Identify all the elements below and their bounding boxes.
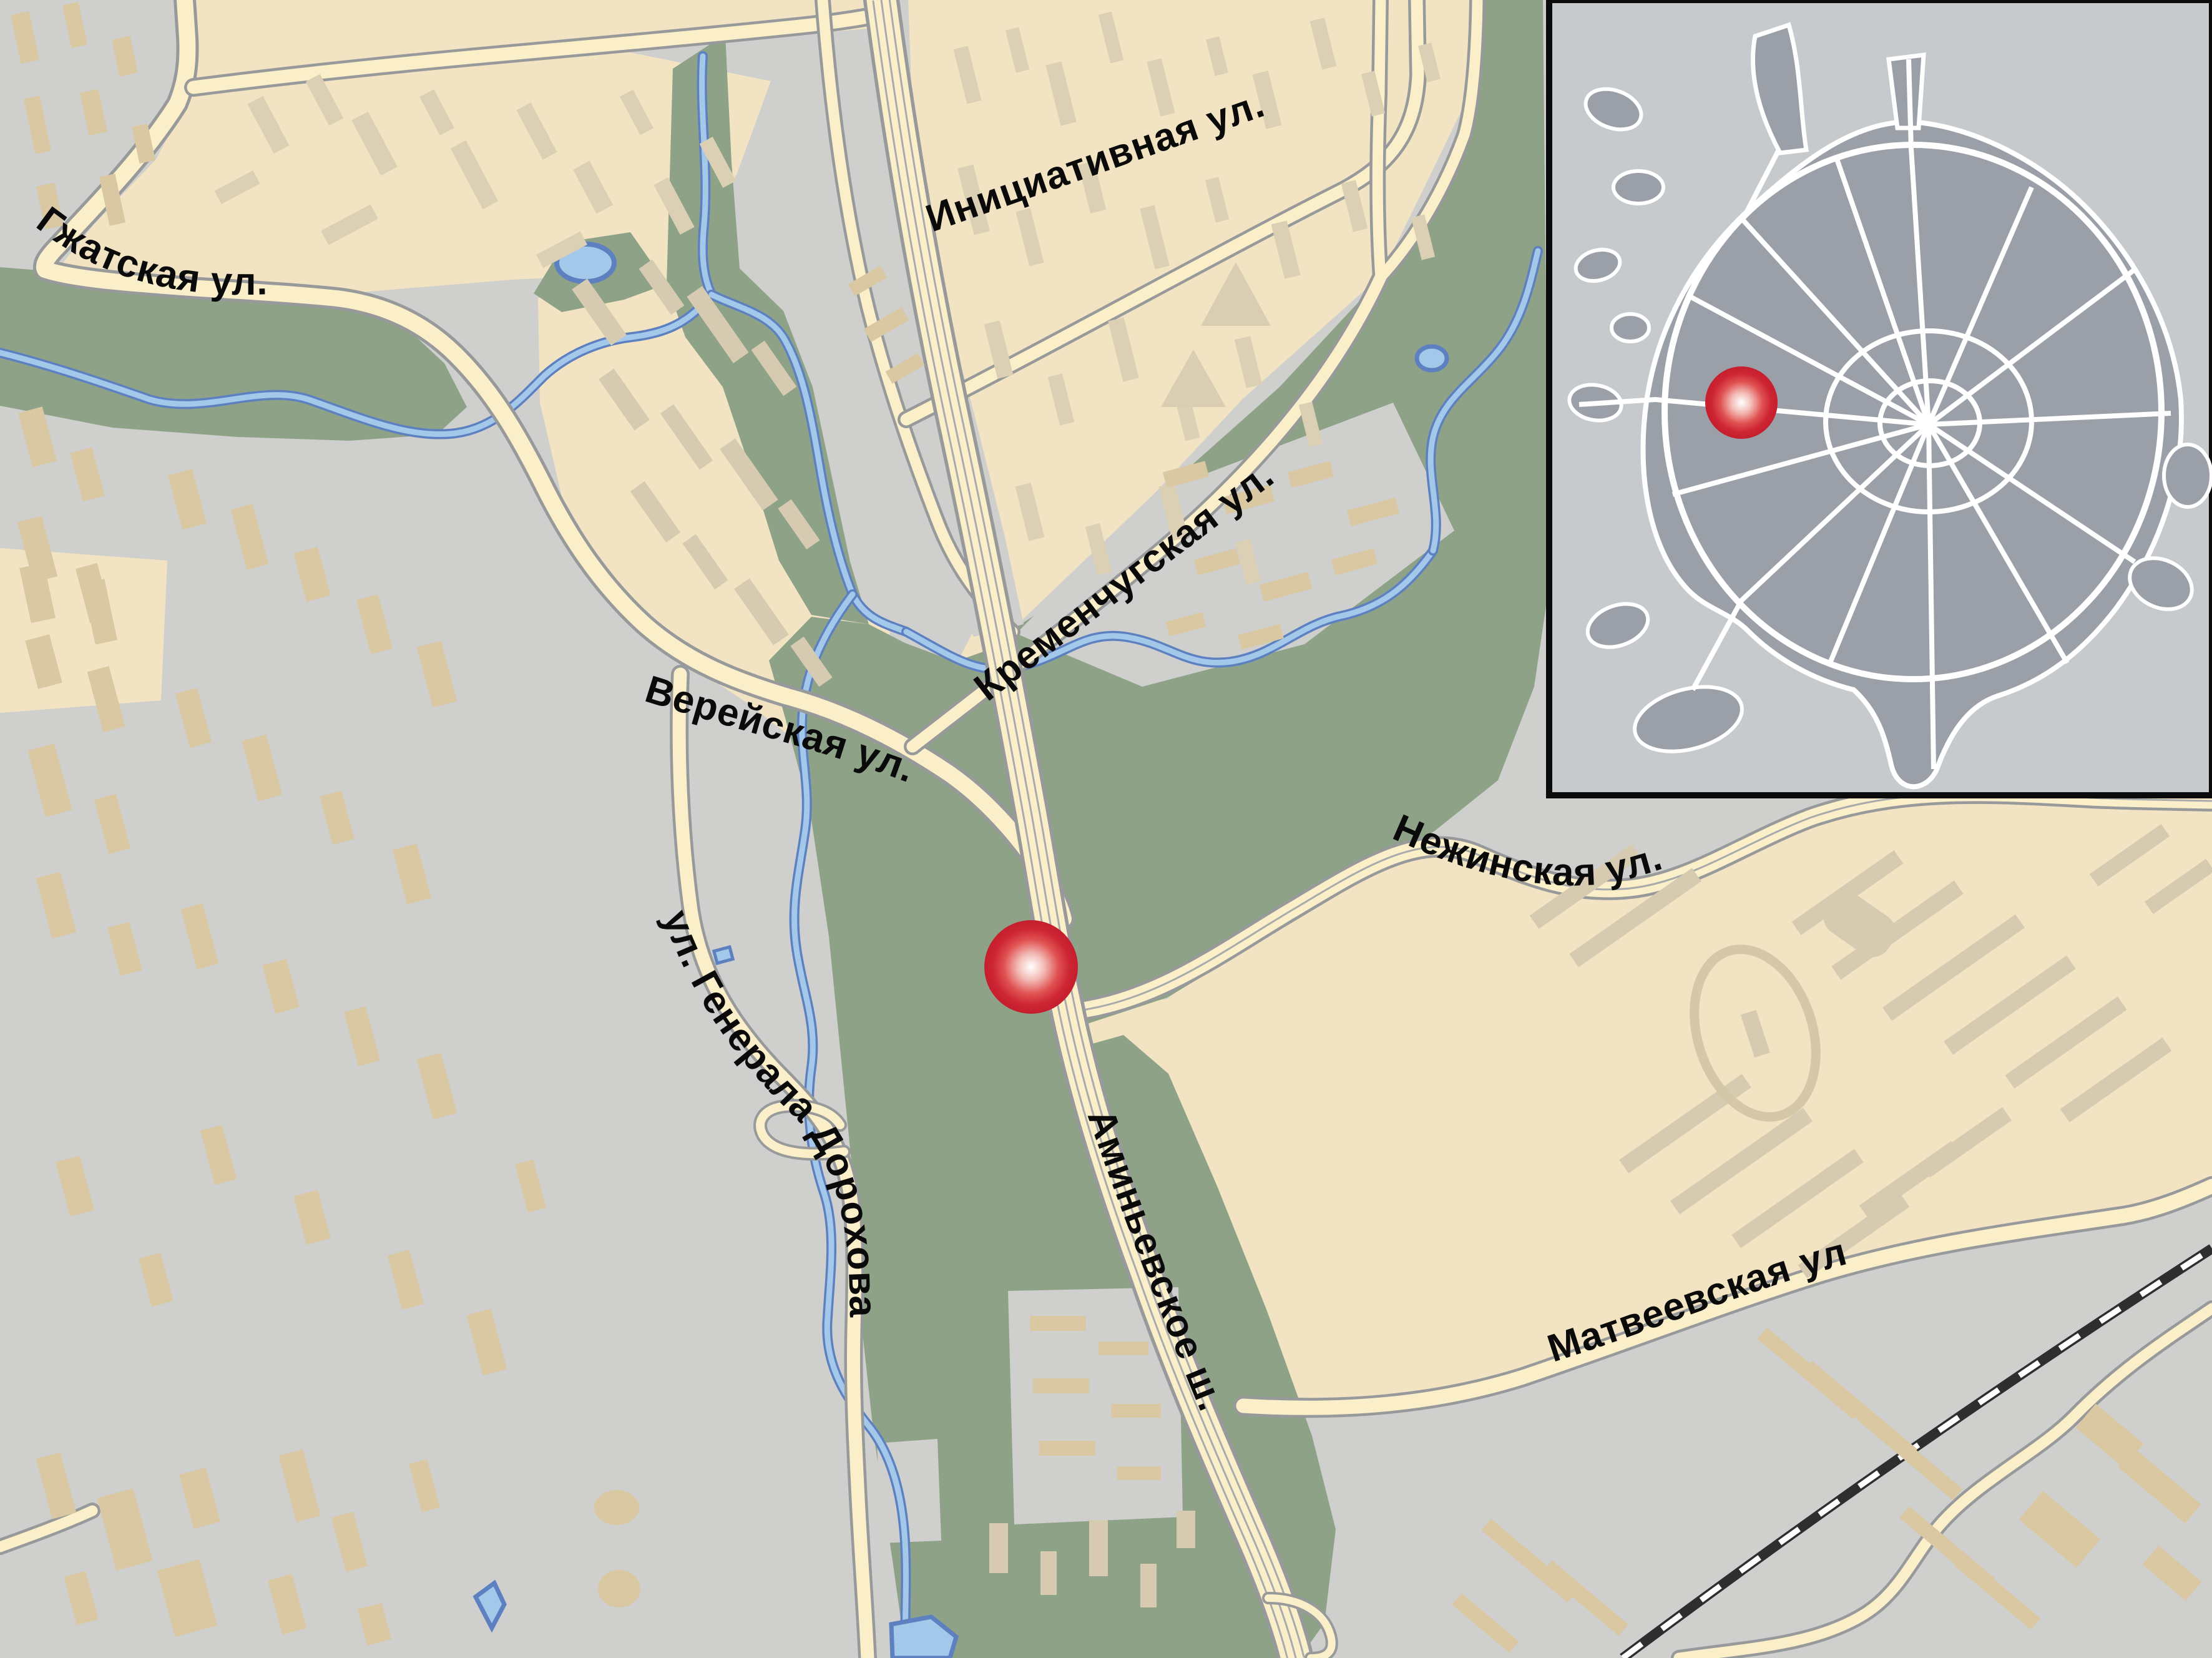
map-canvas: Гжатская ул. Инициативная ул. Кременчугс… bbox=[0, 0, 2212, 1658]
location-marker-icon bbox=[984, 920, 1078, 1014]
city-map: Гжатская ул. Инициативная ул. Кременчугс… bbox=[0, 0, 2212, 1658]
moscow-overview-inset bbox=[1549, 0, 2212, 795]
inset-location-marker-icon bbox=[1705, 366, 1778, 439]
